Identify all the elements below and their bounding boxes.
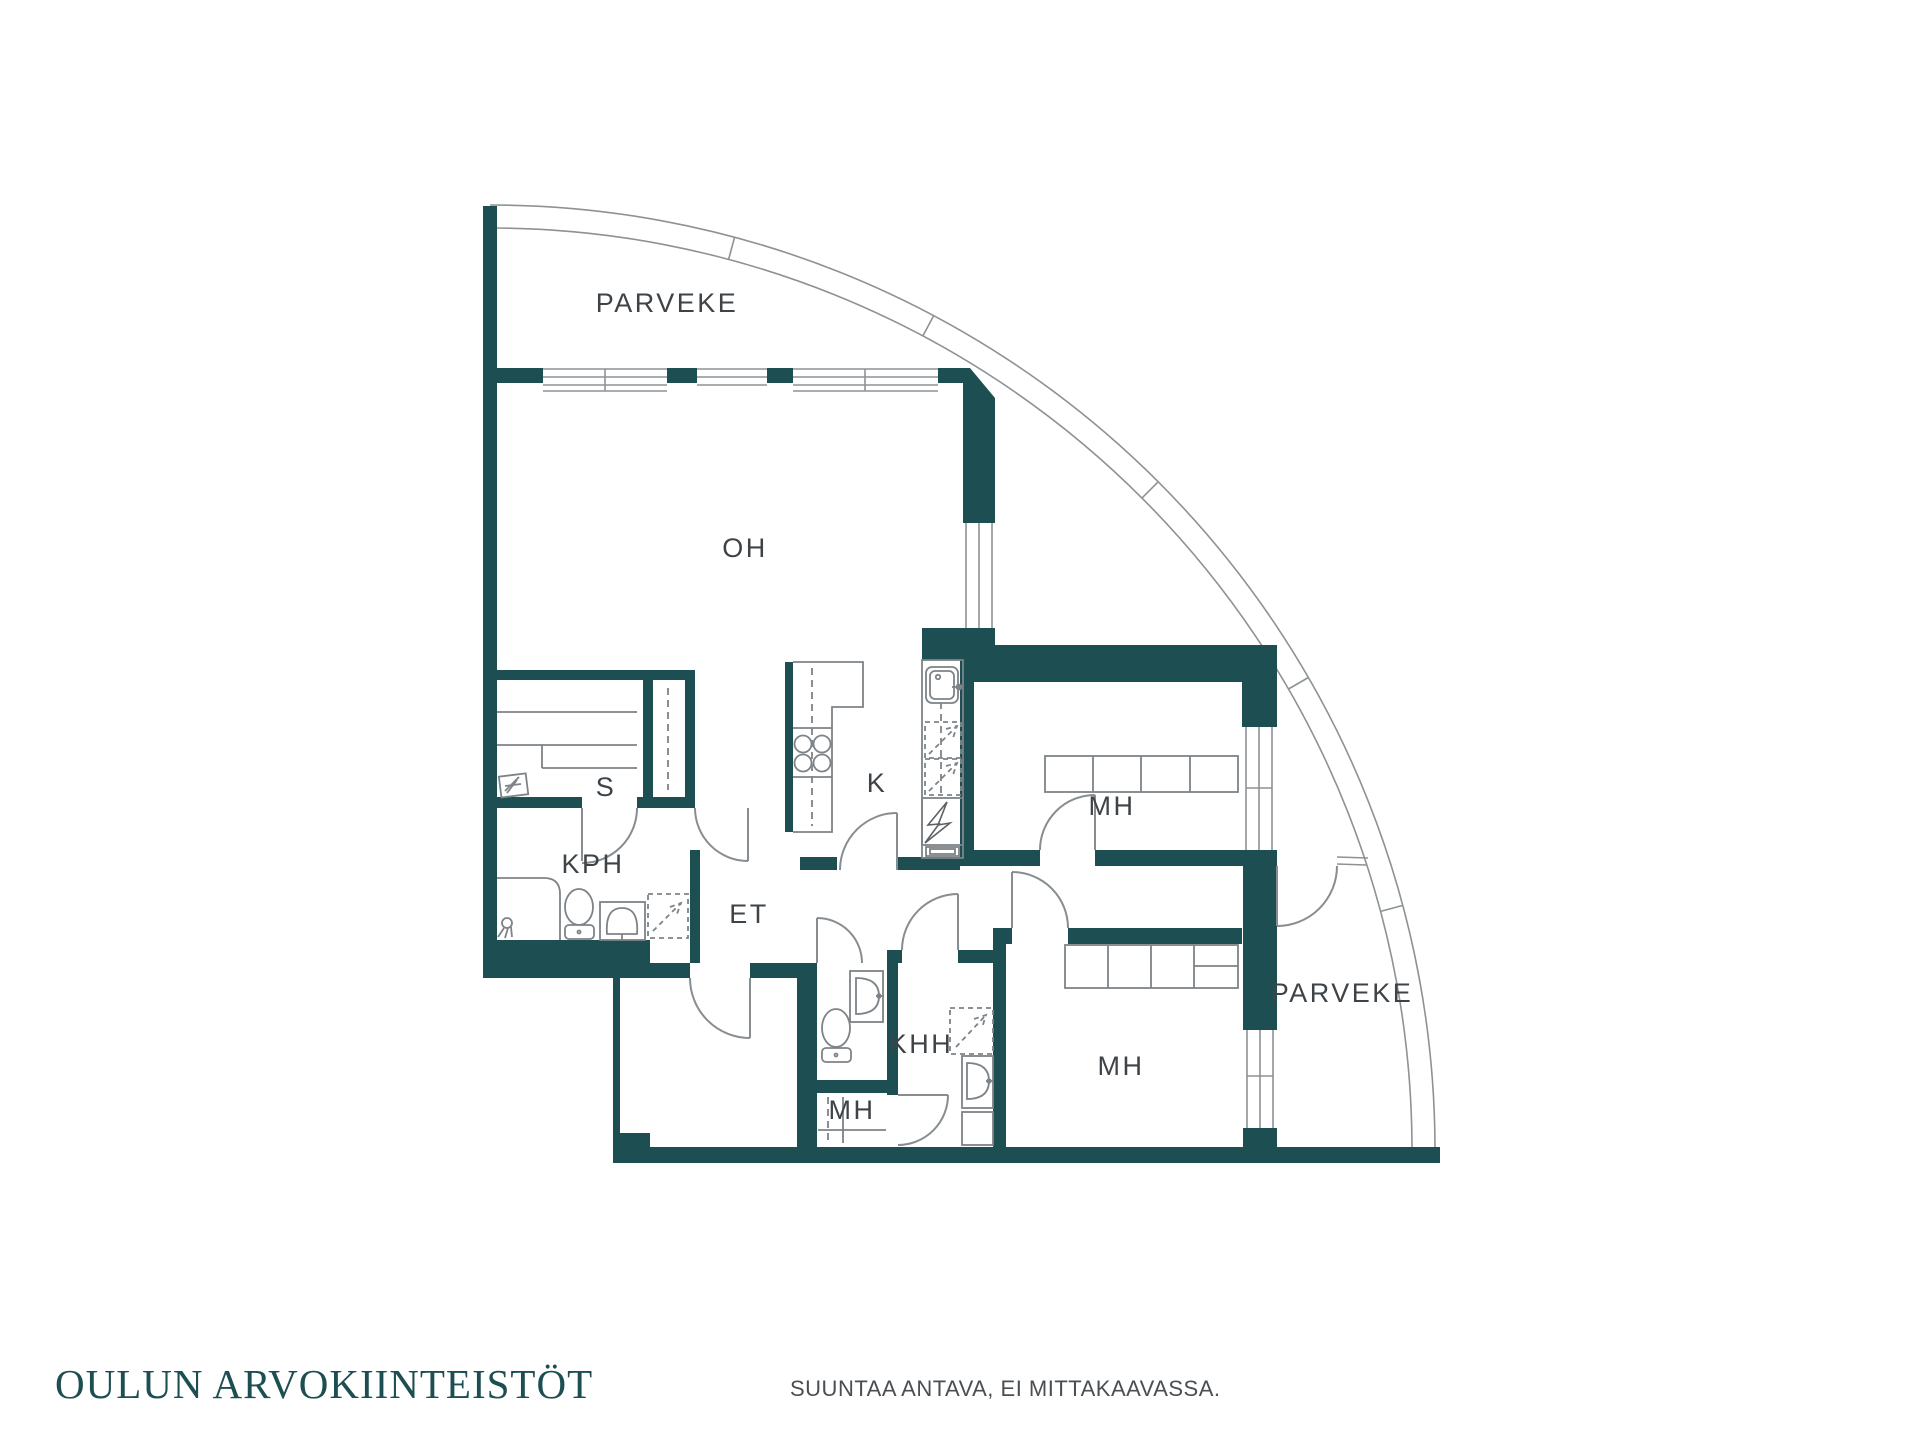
toilet-icon — [822, 1009, 851, 1062]
sauna-heater-icon — [499, 773, 528, 797]
kitchen-counter — [793, 662, 863, 832]
sink-icon — [600, 902, 645, 940]
electrical-panel-icon — [922, 798, 963, 856]
wardrobe — [1045, 756, 1238, 792]
kitchen-door — [840, 813, 897, 870]
kitchen-sink-icon — [926, 667, 963, 703]
wardrobe — [1065, 945, 1238, 988]
company-logo: OULUN ARVOKIINTEISTÖT — [55, 1360, 593, 1408]
sink-icon — [962, 1056, 993, 1108]
room-label-mh-top: MH — [1089, 791, 1136, 821]
floor-plan: PARVEKE OH S KPH ET K MH KHH MH MH PARVE… — [0, 0, 1920, 1440]
balcony-door — [1277, 866, 1337, 926]
washing-machine-icon — [950, 1008, 993, 1054]
mh-top-door — [1040, 795, 1095, 850]
appliance — [962, 1112, 993, 1145]
sauna-benches — [497, 712, 637, 768]
kph-door — [695, 808, 748, 861]
mh-bottom-door — [1012, 872, 1068, 928]
room-label-khh: KHH — [889, 1029, 954, 1059]
disclaimer-text: SUUNTAA ANTAVA, EI MITTAKAAVASSA. — [790, 1376, 1221, 1402]
dishwasher-icon — [925, 722, 961, 795]
khh-door — [902, 894, 958, 950]
room-label-parveke-top: PARVEKE — [596, 288, 739, 318]
room-label-s: S — [596, 772, 617, 802]
toilet-icon — [565, 889, 594, 939]
window — [543, 366, 1277, 1128]
washing-machine-icon — [648, 894, 688, 938]
floor-plan-sheet: PARVEKE OH S KPH ET K MH KHH MH MH PARVE… — [0, 0, 1920, 1440]
wc-door — [817, 918, 862, 963]
room-label-mh-bottom: MH — [1098, 1051, 1145, 1081]
room-label-mh-small: MH — [829, 1095, 876, 1125]
shower-icon — [497, 878, 560, 940]
sink-icon — [850, 971, 884, 1022]
room-label-k: K — [867, 768, 888, 798]
entrance-door — [690, 978, 750, 1038]
mh-small-door — [898, 1095, 948, 1145]
room-label-et: ET — [729, 899, 769, 929]
room-label-kph: KPH — [561, 849, 624, 879]
room-label-parveke-right: PARVEKE — [1271, 978, 1414, 1008]
room-label-oh: OH — [722, 533, 768, 563]
